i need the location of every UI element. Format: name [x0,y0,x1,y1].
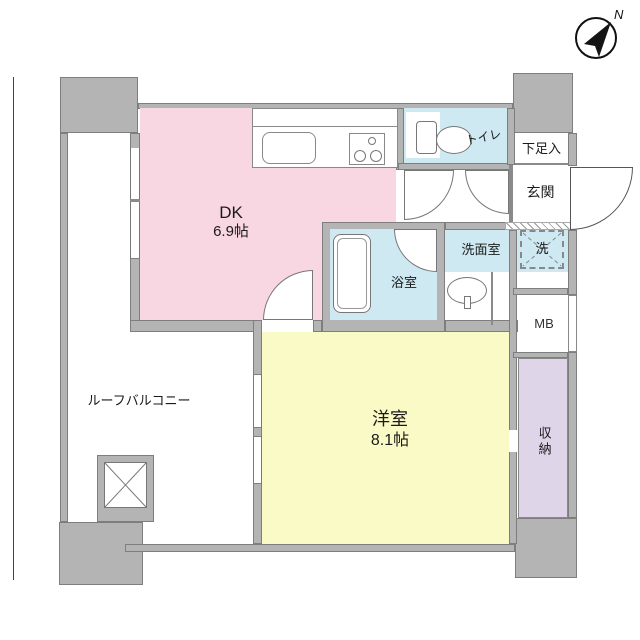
wall-dk-left-lower [130,258,140,322]
hatch-box [104,462,147,508]
bedroom-window-2 [253,437,262,483]
meter-box-vent [568,295,577,352]
dk-label: DK 6.9帖 [181,203,281,241]
wall-mb-top [513,288,568,295]
bedroom-size: 8.1帖 [340,431,440,450]
wall-band-left [130,320,262,332]
bedroom-window-mullion [253,427,262,437]
stove-burner-1 [354,150,366,162]
washer-label: 洗 [520,241,564,257]
bathroom-label: 浴室 [384,275,424,291]
toilet-tank [416,121,437,154]
shoe-box-label: 下足入 [515,141,568,157]
wall-band-right [445,320,518,332]
compass: N [570,6,628,64]
dk-window-mullion [130,199,140,202]
entrance-step-hatch [505,222,577,230]
storage-opening [509,430,517,452]
wall-toilet-bottom [398,163,512,170]
door-dk-hall [404,170,454,220]
wall-band-mid [313,320,322,332]
meter-box-label: MB [520,316,568,332]
wall-block-bottom-right [515,518,577,578]
property-line [13,77,14,580]
storage-label: 収納 [536,426,552,458]
wall-bedroom-right [509,230,517,544]
floorplan: DK 6.9帖 洋室 8.1帖 トイレ 下足入 玄関 洗面室 洗 浴室 MB 収… [0,0,640,640]
bedroom-name: 洋室 [340,409,440,431]
wall-right-upper [568,133,577,166]
wall-left [60,133,68,522]
washroom-label: 洗面室 [441,242,521,258]
kitchen-sink [262,132,316,164]
dk-name: DK [181,203,281,223]
wall-block-top-right [513,73,573,133]
wall-hall-bottom [445,222,507,230]
wall-toilet-entrance [507,108,515,165]
hatch-cross [105,463,146,507]
vanity-counter-edge [491,272,493,325]
wall-bedroom-left-upper [253,320,262,375]
entrance-label: 玄関 [513,184,568,201]
door-toilet [465,170,509,214]
wall-bedroom-left-lower [253,483,262,544]
wall-block-bottom-left [59,522,143,585]
compass-north-label: N [614,7,624,22]
door-entrance-swing [570,167,633,230]
dk-bedroom-doorway [262,320,313,332]
kitchen-counter-line [252,126,398,127]
bathtub-inner [337,238,367,309]
wall-right-lower [568,352,577,518]
vanity-faucet [464,296,471,309]
wall-block-top-left [60,77,138,133]
wall-bottom [125,544,515,552]
wall-dk-left-upper [130,133,140,149]
wall-right-mid [568,230,577,295]
bedroom-window-1 [253,375,262,427]
stove-burner-3 [368,137,376,145]
bedroom-label: 洋室 8.1帖 [340,409,440,450]
stove-burner-2 [370,150,382,162]
dk-size: 6.9帖 [181,223,281,241]
dk-window [130,148,140,258]
roof-balcony-label: ルーフバルコニー [80,393,198,409]
